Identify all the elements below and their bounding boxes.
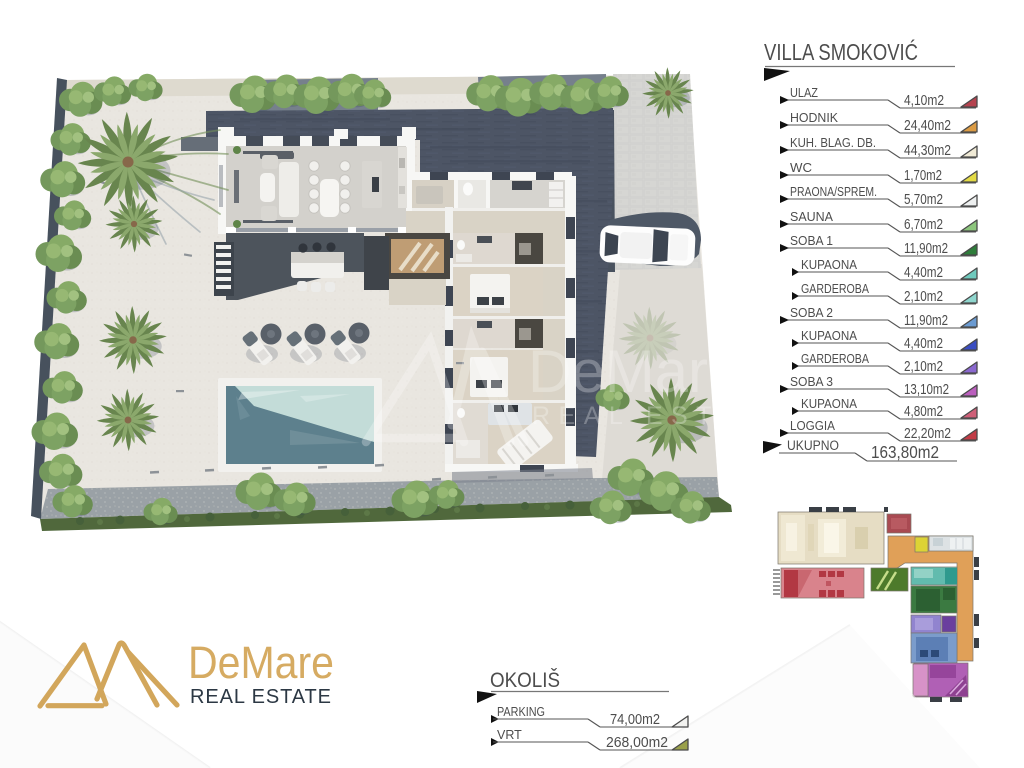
svg-text:SOBA 3: SOBA 3 [790, 375, 833, 389]
svg-text:163,80m2: 163,80m2 [871, 442, 939, 462]
svg-text:REAL ESTATE: REAL ESTATE [190, 686, 331, 708]
svg-text:VRT: VRT [497, 728, 522, 742]
svg-text:6,70m2: 6,70m2 [904, 217, 943, 233]
svg-text:4,10m2: 4,10m2 [904, 93, 944, 109]
svg-text:268,00m2: 268,00m2 [606, 735, 668, 751]
svg-text:DeMare: DeMare [188, 637, 334, 688]
svg-text:SAUNA: SAUNA [790, 210, 834, 224]
svg-text:GARDEROBA: GARDEROBA [801, 352, 870, 366]
svg-text:74,00m2: 74,00m2 [610, 712, 660, 728]
svg-text:KUH. BLAG. DB.: KUH. BLAG. DB. [790, 136, 876, 150]
svg-text:UKUPNO: UKUPNO [787, 438, 839, 453]
svg-text:VILLA SMOKOVIĆ: VILLA SMOKOVIĆ [764, 39, 918, 65]
svg-text:4,80m2: 4,80m2 [904, 404, 943, 420]
svg-text:SOBA 1: SOBA 1 [790, 234, 833, 248]
svg-text:24,40m2: 24,40m2 [904, 118, 951, 134]
svg-text:11,90m2: 11,90m2 [904, 313, 948, 329]
svg-text:ULAZ: ULAZ [790, 86, 818, 100]
svg-text:44,30m2: 44,30m2 [904, 143, 951, 159]
svg-text:PRAONA/SPREM.: PRAONA/SPREM. [790, 185, 877, 199]
svg-text:OKOLIŠ: OKOLIŠ [490, 669, 560, 692]
svg-text:SOBA 2: SOBA 2 [790, 306, 833, 320]
svg-text:LOGGIA: LOGGIA [790, 419, 836, 433]
svg-text:DeMare: DeMare [528, 338, 741, 405]
svg-text:HODNIK: HODNIK [790, 111, 839, 125]
svg-text:GARDEROBA: GARDEROBA [801, 282, 870, 296]
svg-text:KUPAONA: KUPAONA [801, 397, 858, 411]
svg-text:KUPAONA: KUPAONA [801, 258, 858, 272]
svg-text:22,20m2: 22,20m2 [904, 426, 951, 442]
svg-text:1,70m2: 1,70m2 [904, 168, 942, 184]
svg-text:4,40m2: 4,40m2 [904, 265, 943, 281]
svg-text:11,90m2: 11,90m2 [904, 241, 948, 257]
svg-text:REAL ESTATE: REAL ESTATE [532, 402, 790, 430]
svg-text:KUPAONA: KUPAONA [801, 329, 858, 343]
svg-text:2,10m2: 2,10m2 [904, 289, 943, 305]
svg-text:4,40m2: 4,40m2 [904, 336, 943, 352]
svg-text:2,10m2: 2,10m2 [904, 359, 943, 375]
svg-text:PARKING: PARKING [497, 705, 545, 719]
svg-text:WC: WC [790, 161, 812, 175]
svg-text:5,70m2: 5,70m2 [904, 192, 943, 208]
svg-text:13,10m2: 13,10m2 [904, 382, 949, 398]
